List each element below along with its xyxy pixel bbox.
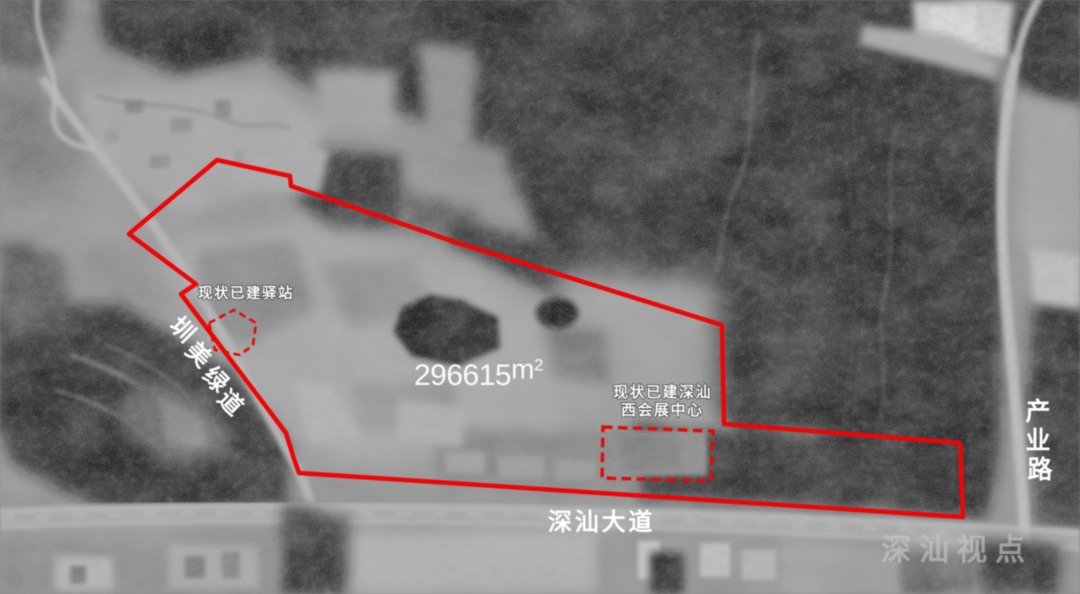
svg-text:深汕大道: 深汕大道 — [548, 508, 655, 536]
svg-text:现状已建驿站: 现状已建驿站 — [198, 284, 294, 302]
svg-text:深汕视点: 深汕视点 — [881, 534, 1033, 567]
svg-text:现状已建深汕: 现状已建深汕 — [613, 383, 712, 401]
svg-text:产: 产 — [1025, 398, 1050, 426]
svg-text:业: 业 — [1025, 427, 1050, 455]
svg-text:西会展中心: 西会展中心 — [621, 401, 704, 419]
svg-text:路: 路 — [1027, 456, 1053, 484]
